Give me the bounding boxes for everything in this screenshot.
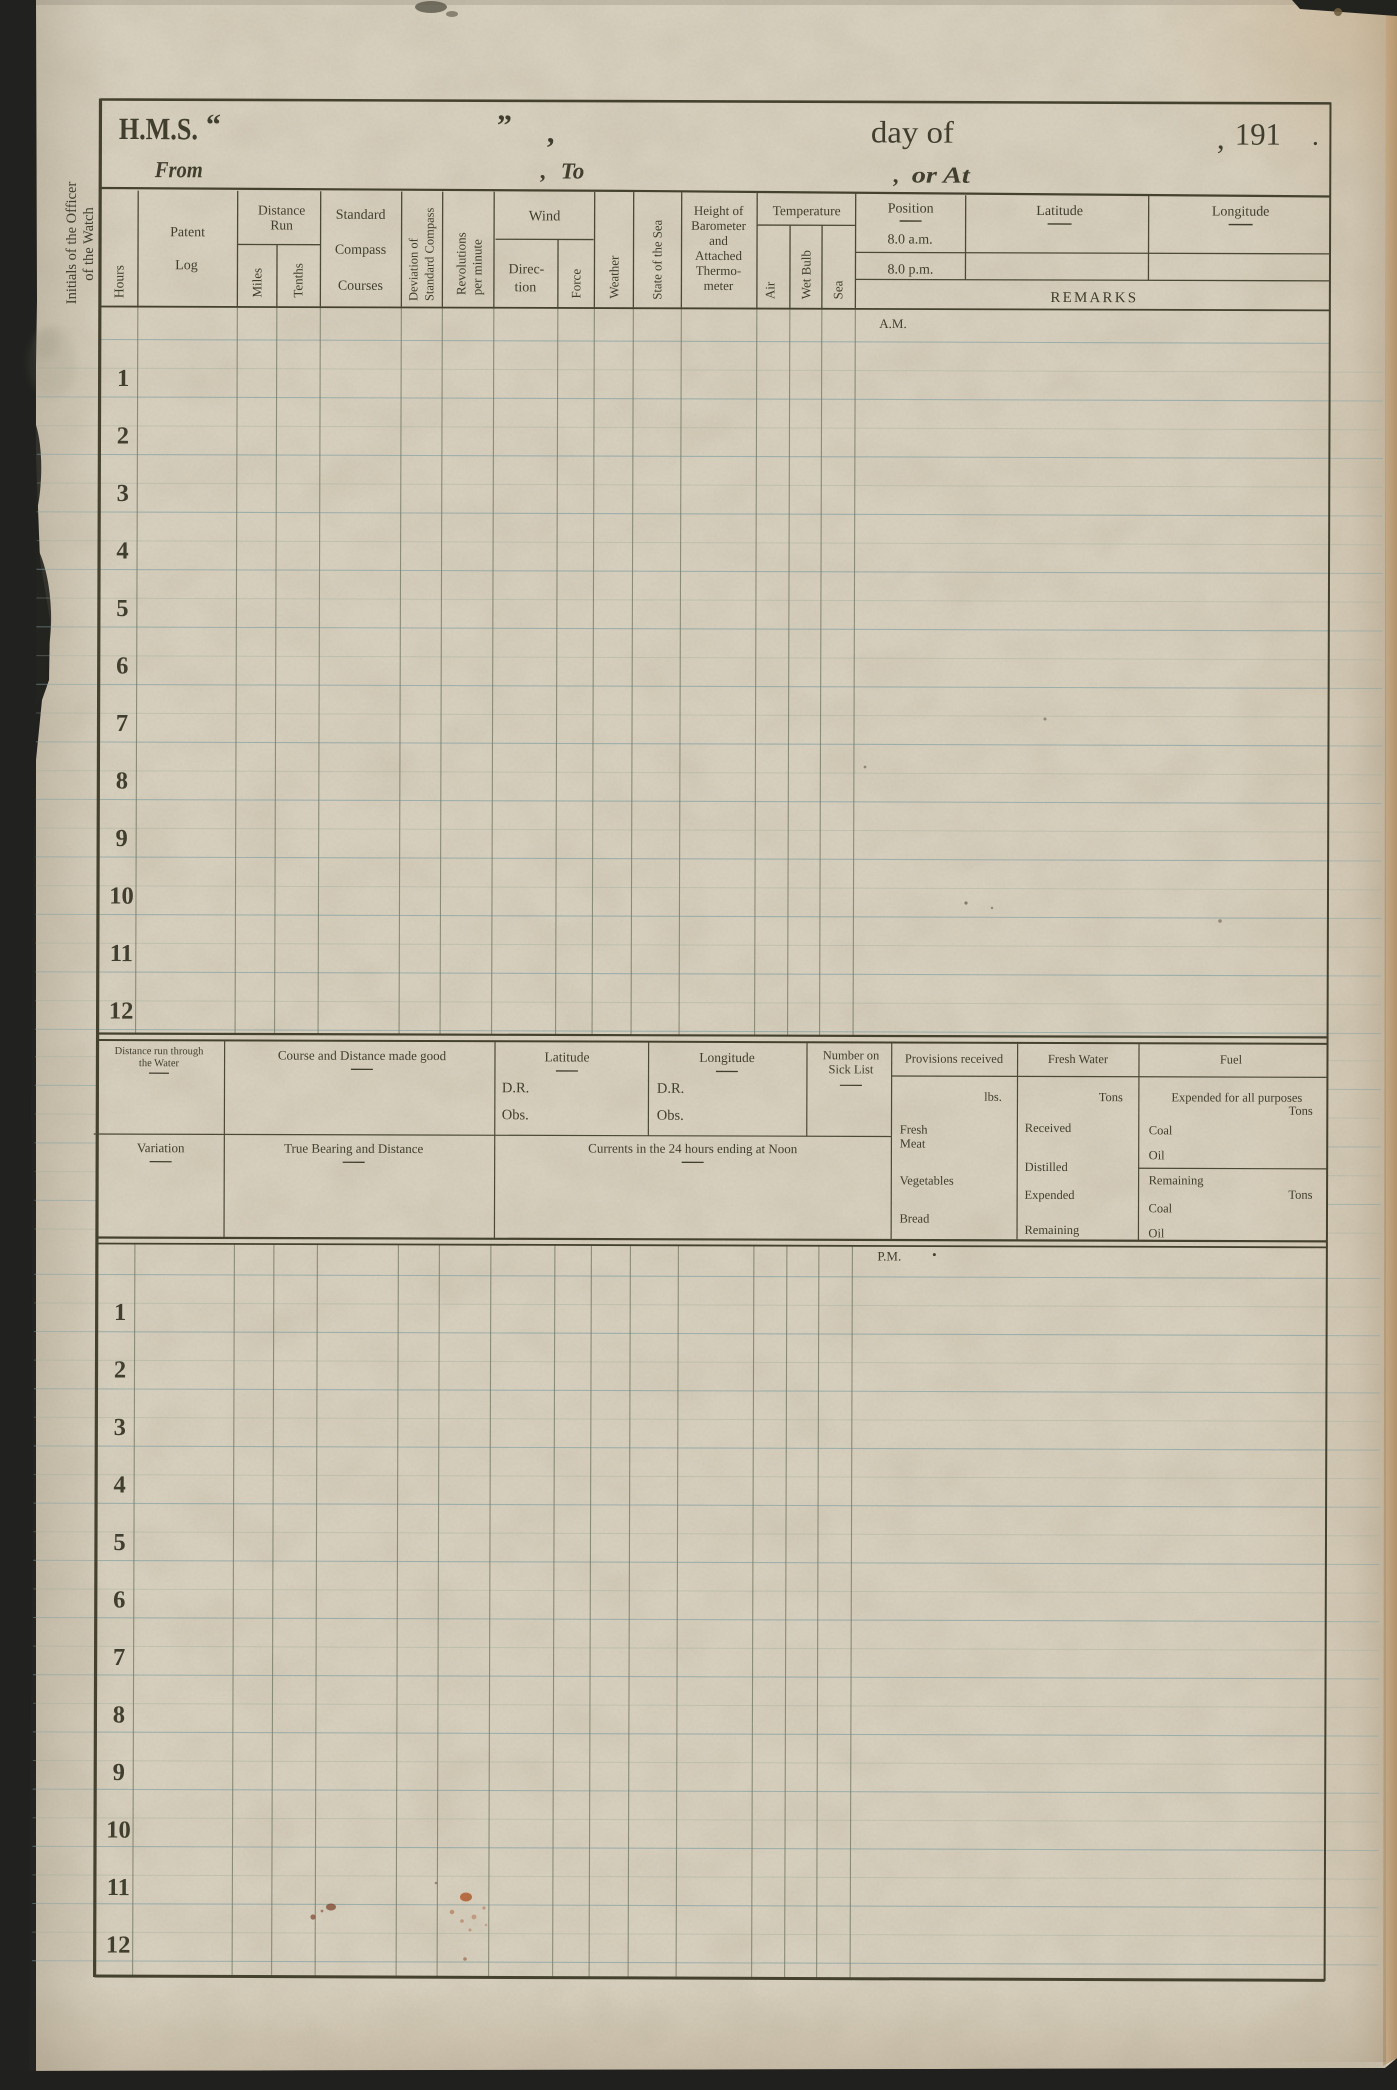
svg-text:5: 5 (113, 1529, 125, 1556)
svg-text:,: , (547, 116, 555, 149)
svg-text:meter: meter (704, 278, 734, 293)
svg-text:Air: Air (762, 281, 777, 299)
svg-text:Longitude: Longitude (699, 1050, 755, 1065)
svg-text:11: 11 (107, 1874, 130, 1901)
svg-text:Currents in the 24 hours endin: Currents in the 24 hours ending at Noon (588, 1141, 798, 1157)
svg-text:Bread: Bread (899, 1212, 930, 1226)
svg-text:Fresh: Fresh (900, 1123, 929, 1137)
svg-text:Thermo-: Thermo- (696, 263, 742, 278)
svg-text:4: 4 (113, 1472, 125, 1499)
svg-text:Variation: Variation (137, 1140, 185, 1155)
svg-text:Latitude: Latitude (544, 1049, 589, 1064)
svg-text:Weather: Weather (606, 255, 621, 299)
svg-text:Coal: Coal (1148, 1201, 1172, 1215)
svg-text:H.M.S.: H.M.S. (119, 111, 198, 146)
svg-text:lbs.: lbs. (984, 1090, 1002, 1104)
svg-text:7: 7 (116, 710, 128, 737)
svg-text:Vegetables: Vegetables (900, 1174, 954, 1188)
svg-text:Wet Bulb: Wet Bulb (798, 250, 813, 299)
svg-text:per minute: per minute (469, 239, 484, 295)
svg-text:Course and Distance made good: Course and Distance made good (278, 1048, 447, 1064)
svg-text:9: 9 (116, 825, 128, 852)
svg-text:Expended for all purposes: Expended for all purposes (1171, 1090, 1302, 1104)
svg-text:11: 11 (110, 940, 133, 967)
svg-text:8: 8 (116, 768, 128, 795)
svg-text:”: ” (497, 109, 512, 142)
svg-text:Position: Position (888, 201, 934, 216)
svg-text:D.R.: D.R. (502, 1080, 529, 1096)
svg-text:Compass: Compass (335, 243, 386, 258)
svg-text:Distance run through: Distance run through (115, 1046, 204, 1057)
svg-text:Expended: Expended (1025, 1188, 1076, 1202)
svg-text:Tenths: Tenths (290, 263, 305, 298)
svg-text:Temperature: Temperature (773, 203, 841, 218)
svg-text:Oil: Oil (1148, 1226, 1165, 1240)
svg-text:From: From (154, 157, 203, 182)
svg-text:Initials of the Officer: Initials of the Officer (64, 182, 80, 305)
svg-text:6: 6 (116, 653, 128, 680)
svg-text:“: “ (206, 108, 221, 141)
svg-text:Distance: Distance (258, 202, 305, 217)
svg-text:Attached: Attached (695, 248, 742, 263)
svg-text:Meat: Meat (900, 1137, 926, 1151)
svg-text:Fresh Water: Fresh Water (1048, 1052, 1109, 1066)
svg-text:12: 12 (106, 1932, 131, 1959)
svg-text:,: , (893, 162, 899, 187)
svg-text:8.0 p.m.: 8.0 p.m. (887, 262, 933, 277)
svg-text:Run: Run (270, 218, 293, 233)
svg-text:and: and (709, 233, 728, 248)
svg-text:Longitude: Longitude (1212, 204, 1270, 219)
svg-text:.: . (1312, 121, 1319, 152)
svg-text:1: 1 (117, 365, 129, 392)
svg-text:REMARKS: REMARKS (1050, 290, 1138, 306)
svg-text:Deviation of: Deviation of (406, 237, 420, 301)
svg-text:Tons: Tons (1099, 1090, 1123, 1104)
svg-text:D.R.: D.R. (657, 1081, 684, 1097)
svg-text:5: 5 (116, 595, 128, 622)
svg-text:day of: day of (871, 114, 955, 149)
svg-text:Tons: Tons (1288, 1188, 1312, 1202)
svg-text:1: 1 (114, 1299, 126, 1326)
svg-text:Remaining: Remaining (1024, 1223, 1080, 1237)
svg-text:3: 3 (117, 480, 129, 507)
svg-text:Hours: Hours (111, 265, 126, 298)
svg-text:tion: tion (514, 280, 536, 295)
svg-text:3: 3 (114, 1414, 126, 1441)
svg-text:Provisions received: Provisions received (905, 1052, 1004, 1066)
svg-text:Obs.: Obs. (657, 1108, 684, 1124)
svg-text:Standard Compass: Standard Compass (422, 207, 436, 301)
svg-text:Height of: Height of (694, 203, 744, 218)
svg-text:12: 12 (109, 998, 134, 1025)
svg-text:Fuel: Fuel (1220, 1053, 1243, 1067)
svg-text:Barometer: Barometer (691, 218, 747, 233)
svg-text:True Bearing and Distance: True Bearing and Distance (284, 1141, 424, 1156)
svg-text:Sick List: Sick List (829, 1062, 874, 1076)
svg-text:Oil: Oil (1149, 1148, 1166, 1162)
svg-text:2: 2 (117, 423, 129, 450)
svg-text:Revolutions: Revolutions (453, 232, 468, 295)
svg-text:of the Watch: of the Watch (81, 207, 97, 281)
svg-text:Standard: Standard (336, 208, 386, 223)
svg-text:State of the Sea: State of the Sea (650, 219, 664, 299)
svg-text:P.M.: P.M. (877, 1248, 901, 1263)
svg-text:or At: or At (912, 163, 971, 188)
svg-text:Direc-: Direc- (509, 262, 545, 277)
svg-text:Received: Received (1025, 1121, 1072, 1135)
svg-text:A.M.: A.M. (879, 316, 907, 331)
svg-text:Sea: Sea (830, 280, 845, 299)
svg-text:10: 10 (106, 1817, 131, 1844)
svg-text:6: 6 (113, 1587, 125, 1614)
svg-text:Patent: Patent (170, 225, 205, 240)
svg-text:To: To (561, 158, 585, 183)
svg-text:Latitude: Latitude (1036, 204, 1083, 219)
svg-text:Remaining: Remaining (1149, 1173, 1205, 1187)
svg-text:,: , (1217, 121, 1225, 156)
svg-text:Tons: Tons (1289, 1104, 1313, 1118)
svg-text:8: 8 (113, 1702, 125, 1729)
svg-text:Miles: Miles (249, 268, 264, 298)
svg-text:,: , (540, 158, 546, 183)
svg-text:Distilled: Distilled (1025, 1160, 1069, 1174)
svg-text:Log: Log (175, 258, 198, 273)
svg-text:9: 9 (113, 1759, 125, 1786)
svg-text:Force: Force (568, 269, 583, 299)
svg-text:7: 7 (113, 1644, 125, 1671)
svg-text:191: 191 (1235, 117, 1281, 152)
svg-text:Obs.: Obs. (502, 1107, 529, 1123)
svg-text:Number on: Number on (823, 1048, 880, 1062)
svg-text:2: 2 (114, 1357, 126, 1384)
svg-text:8.0 a.m.: 8.0 a.m. (888, 232, 933, 247)
svg-text:10: 10 (109, 883, 134, 910)
svg-text:Courses: Courses (338, 279, 383, 294)
svg-text:4: 4 (116, 538, 128, 565)
svg-text:Wind: Wind (529, 208, 561, 224)
svg-text:Coal: Coal (1149, 1123, 1173, 1137)
svg-text:the Water: the Water (139, 1058, 180, 1069)
